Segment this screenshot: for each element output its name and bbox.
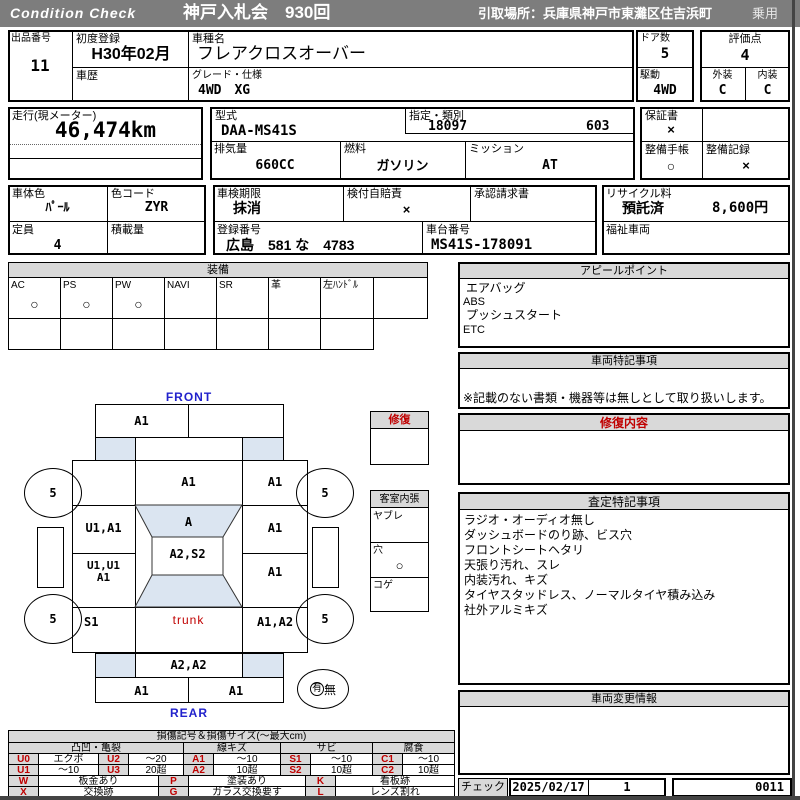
maintenance-book-label: 整備手帳 (645, 144, 689, 156)
equipment-value: ○ (60, 297, 113, 312)
assessment-line: フロントシートヘタリ (464, 544, 584, 557)
divider (10, 158, 201, 159)
capacity-value: 4 (8, 239, 107, 253)
divider (470, 187, 471, 221)
displacement-label: 排気量 (214, 143, 247, 155)
equipment-cell-empty (112, 318, 165, 350)
vehicle-notes-header: 車両特記事項 (460, 354, 788, 369)
mission-label: ミッション (469, 143, 524, 155)
divider (371, 577, 428, 578)
lot-number-label: 出品番号 (11, 33, 51, 44)
divider (188, 404, 189, 438)
mission-value: AT (465, 159, 635, 173)
headlight-right (242, 437, 284, 461)
doors-value: 5 (636, 47, 694, 62)
taillight-left (95, 653, 136, 678)
drive-label: 駆動 (640, 70, 660, 81)
appeal-line: ETC (463, 324, 485, 336)
divider (604, 221, 788, 222)
presence-yes-circled: 有 (310, 682, 324, 696)
grade-label: グレード・仕様 (192, 70, 262, 81)
brand-logo: Condition Check (10, 6, 136, 21)
appeal-line: エアバッグ (466, 282, 526, 295)
doors-label: ドア数 (640, 33, 670, 44)
equipment-label: 左ﾊﾝﾄﾞﾙ (323, 280, 358, 291)
equipment-cell-empty (60, 318, 113, 350)
equipment-header: 装備 (8, 262, 428, 278)
welfare-label: 福祉車両 (606, 224, 650, 236)
jibaiseki-value: × (343, 203, 470, 217)
model-name-value: フレアクロスオーバー (197, 45, 366, 64)
body-color-label: 車体色 (12, 188, 45, 200)
shaken-value: 抹消 (233, 201, 261, 216)
divider (72, 67, 632, 68)
panel-roof: A2,S2 (152, 548, 223, 561)
taillight-right (242, 653, 284, 678)
body-color-value: ﾊﾟｰﾙ (8, 201, 107, 214)
condition-check-sheet: Condition Check 神戸入札会 930回 引取場所：兵庫県神戸市東灘… (0, 0, 800, 800)
tire-front-right: 5 (296, 468, 354, 518)
score-value: 4 (700, 47, 790, 64)
equipment-cell-empty (216, 318, 269, 350)
score-label: 評価点 (700, 33, 790, 45)
interior-grade: C (745, 84, 790, 98)
tire-front-left: 5 (24, 468, 82, 518)
equipment-value: ○ (112, 297, 165, 312)
maintenance-record-label: 整備記録 (706, 144, 750, 156)
panel-left-door-rear: U1,U1 A1 (72, 560, 135, 584)
divider (10, 144, 201, 145)
cabin-item-label: 穴 (373, 545, 383, 556)
assessment-line: 社外アルミキズ (464, 604, 548, 617)
jibaiseki-label: 検付自賠責 (347, 188, 402, 200)
assessment-line: タイヤスタッドレス、ノーマルタイヤ積み込み (464, 589, 715, 602)
auction-title: 神戸入札会 930回 (183, 4, 330, 23)
color-code-value: ZYR (107, 201, 206, 215)
grade-value: 4WD XG (198, 84, 250, 98)
panel-left-door-front: U1,A1 (72, 522, 135, 535)
page-bottom-border (0, 796, 800, 800)
divider (10, 221, 204, 222)
recycle-label: リサイクル料 (606, 188, 671, 200)
tire-rear-left: 5 (24, 594, 82, 644)
recycle-status: 預託済 (622, 201, 664, 216)
equipment-cell-empty (8, 318, 61, 350)
recycle-fee: 8,600円 (712, 201, 768, 216)
shaken-label: 車検期限 (217, 188, 261, 200)
chassis-label: 車台番号 (426, 224, 470, 236)
headlight-left (95, 437, 136, 461)
cabin-item-label: ヤブレ (373, 511, 403, 522)
vehicle-notes-text: ※記載のない書類・機器等は無しとして取り扱いします。 (463, 392, 772, 405)
equipment-cell-empty (268, 318, 321, 350)
rear-window-shape (135, 575, 242, 607)
divider (72, 32, 73, 100)
chassis-value: MS41S-178091 (431, 238, 532, 253)
load-label: 積載量 (111, 224, 144, 236)
reg-number-value: 広島 581 な 4783 (226, 238, 354, 253)
lot-number: 11 (8, 57, 72, 75)
tire-rear-right: 5 (296, 594, 354, 644)
cabin-item-label: コゲ (373, 580, 393, 591)
fuel-label: 燃料 (344, 143, 366, 155)
maintenance-record-value: × (702, 159, 790, 173)
presence-mark: 有 無 (297, 669, 349, 709)
assessment-header: 査定特記事項 (460, 494, 788, 510)
divider (215, 221, 595, 222)
first-reg-value: H30年02月 (74, 46, 188, 64)
rear-label: REAR (95, 707, 283, 720)
assessment-line: 天張り汚れ、スレ (464, 559, 560, 572)
capacity-label: 定員 (12, 224, 34, 236)
sill-right (312, 527, 339, 588)
serial-number: 0011 (672, 781, 784, 794)
mileage-value: 46,474km (8, 119, 203, 142)
model-code-label: 型式 (215, 110, 237, 122)
assessment-line: 内装汚れ、キズ (464, 574, 548, 587)
interior-label: 内装 (745, 70, 790, 81)
equipment-value: ○ (8, 297, 61, 312)
warranty-value: × (640, 123, 702, 137)
assessment-line: ラジオ・オーディオ無し (464, 514, 595, 527)
divider (405, 108, 406, 133)
appeal-line: ABS (463, 296, 485, 308)
divider (638, 67, 692, 68)
maintenance-book-value: ○ (640, 159, 702, 174)
trunk-label: trunk (135, 614, 242, 627)
exterior-label: 外装 (700, 70, 745, 81)
panel-rear-panel: A2,A2 (135, 659, 242, 672)
divider (422, 221, 423, 253)
exterior-grade: C (700, 84, 745, 98)
appeal-line: プッシュスタート (466, 309, 562, 322)
first-reg-label: 初度登録 (76, 33, 120, 45)
pickup-location: 引取場所：兵庫県神戸市東灘区住吉浜町 (478, 7, 712, 21)
panel-front-bumper-left: A1 (95, 415, 188, 428)
equipment-label: NAVI (167, 280, 190, 291)
divider (642, 141, 788, 142)
repair-mini-header: 修復 (371, 412, 428, 429)
class-no-1: 18097 (428, 120, 467, 134)
cabin-item-value: ○ (370, 559, 429, 573)
page-right-border (792, 0, 795, 800)
sill-left (37, 527, 64, 588)
presence-no: 無 (324, 681, 336, 698)
panel-hood: A1 (135, 476, 242, 489)
change-info-header: 車両変更情報 (460, 692, 788, 707)
assessment-line: ダッシュボードのり跡、ビス穴 (464, 529, 632, 542)
equipment-cell-extra (373, 277, 428, 319)
warranty-label: 保証書 (645, 110, 678, 122)
class-no-2: 603 (586, 120, 609, 134)
panel-rear-bumper-right: A1 (188, 685, 284, 698)
divider (212, 141, 633, 142)
divider (371, 542, 428, 543)
check-label: チェック (458, 778, 508, 797)
history-label: 車歴 (76, 70, 98, 82)
cabin-header: 客室内張 (371, 491, 428, 508)
fuel-value: ガソリン (340, 159, 465, 173)
equipment-cell-empty (164, 318, 217, 350)
displacement-value: 660CC (210, 159, 340, 173)
repair-detail-header: 修復内容 (460, 415, 788, 431)
reg-number-label: 登録番号 (217, 224, 261, 236)
check-count: 1 (588, 781, 666, 794)
color-code-label: 色コード (111, 188, 155, 200)
panel-right-door-front: A1 (242, 522, 308, 535)
divider (188, 32, 189, 100)
approval-label: 承認請求書 (474, 188, 529, 200)
equipment-label: AC (11, 280, 25, 291)
panel-windshield: A (135, 516, 242, 529)
equipment-label: PS (63, 280, 76, 291)
front-label: FRONT (95, 391, 283, 404)
drive-value: 4WD (636, 84, 694, 98)
panel-right-door-rear: A1 (242, 566, 308, 579)
panel-rear-bumper-left: A1 (95, 685, 188, 698)
equipment-label: 革 (271, 280, 281, 291)
equipment-cell-empty (320, 318, 374, 350)
panel-left-fender-rear: S1 (84, 616, 98, 629)
check-date: 2025/02/17 (509, 781, 588, 794)
model-code-value: DAA-MS41S (221, 124, 297, 139)
equipment-label: PW (115, 280, 131, 291)
vehicle-category: 乗用 (752, 7, 778, 21)
appeal-header: アピールポイント (460, 264, 788, 279)
equipment-label: SR (219, 280, 233, 291)
divider (107, 187, 108, 253)
